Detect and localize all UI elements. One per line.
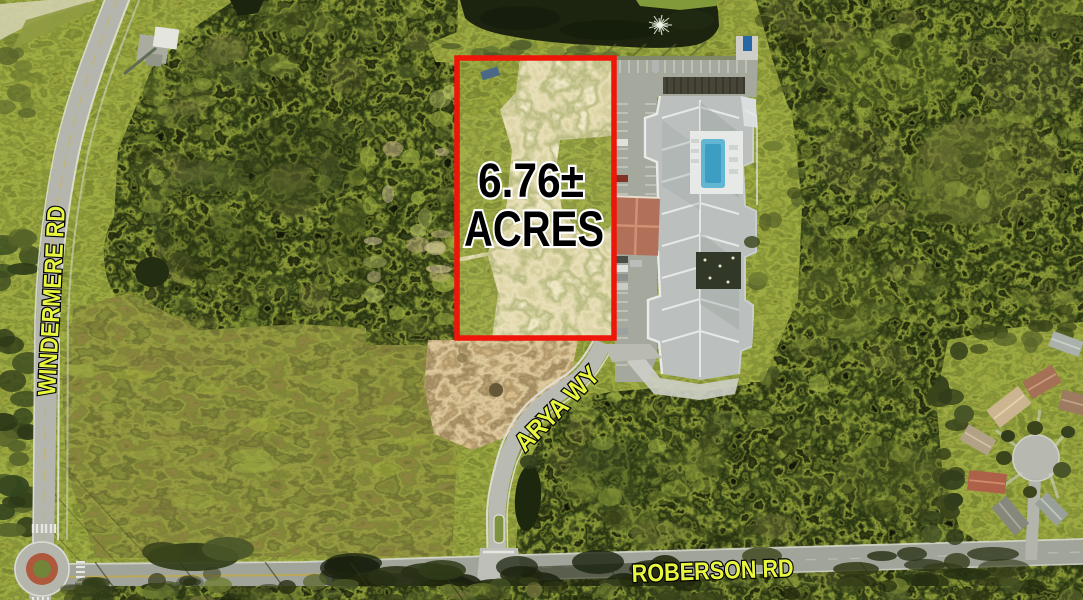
svg-text:ACRES: ACRES (464, 201, 604, 257)
svg-text:ROBERSON RD: ROBERSON RD (631, 554, 794, 588)
